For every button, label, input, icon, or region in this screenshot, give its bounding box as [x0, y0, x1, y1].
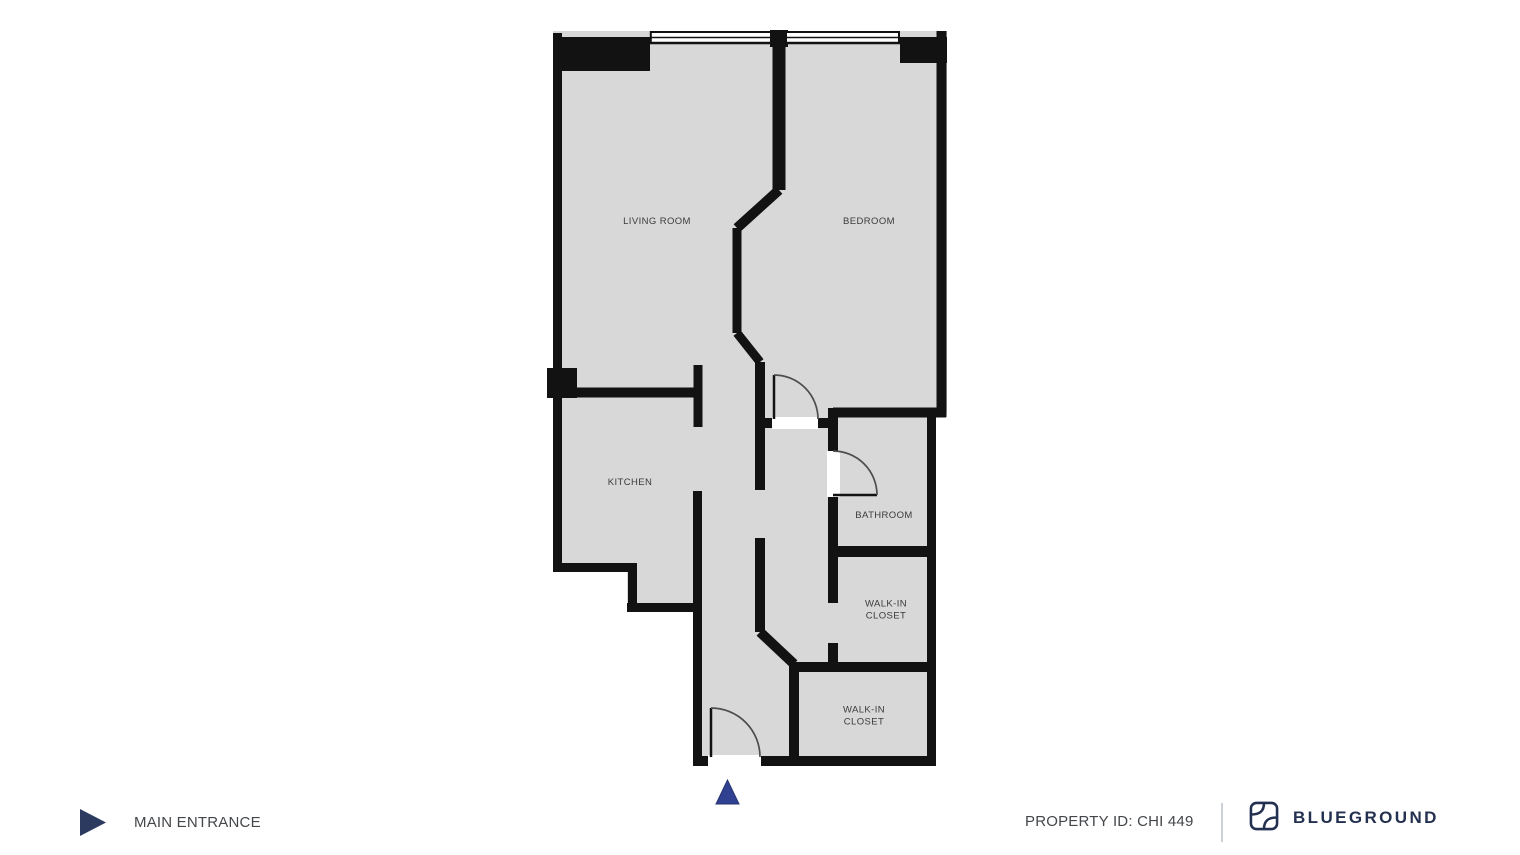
blueground-wordmark: BLUEGROUND [1293, 808, 1439, 828]
property-id: PROPERTY ID: CHI 449 [1025, 813, 1194, 830]
main-entrance-label: MAIN ENTRANCE [134, 814, 261, 831]
floor-area [553, 31, 947, 766]
room-label-walk-in-closet-1: WALK-IN CLOSET [855, 599, 917, 624]
room-label-bedroom: BEDROOM [843, 216, 895, 228]
footer-divider [1221, 803, 1223, 842]
floor-plan [0, 0, 1520, 855]
room-label-walk-in-closet-2: WALK-IN CLOSET [833, 705, 895, 730]
window-1 [650, 31, 770, 44]
window-2 [787, 31, 900, 44]
room-label-living-room: LIVING ROOM [623, 216, 691, 228]
main-entrance-play-icon [78, 807, 108, 839]
room-label-kitchen: KITCHEN [608, 477, 653, 489]
entrance-marker-icon [716, 780, 739, 804]
room-label-bathroom: BATHROOM [855, 510, 912, 522]
floorplan-page: LIVING ROOM BEDROOM KITCHEN BATHROOM WAL… [0, 0, 1520, 855]
blueground-logo-icon [1249, 801, 1279, 831]
